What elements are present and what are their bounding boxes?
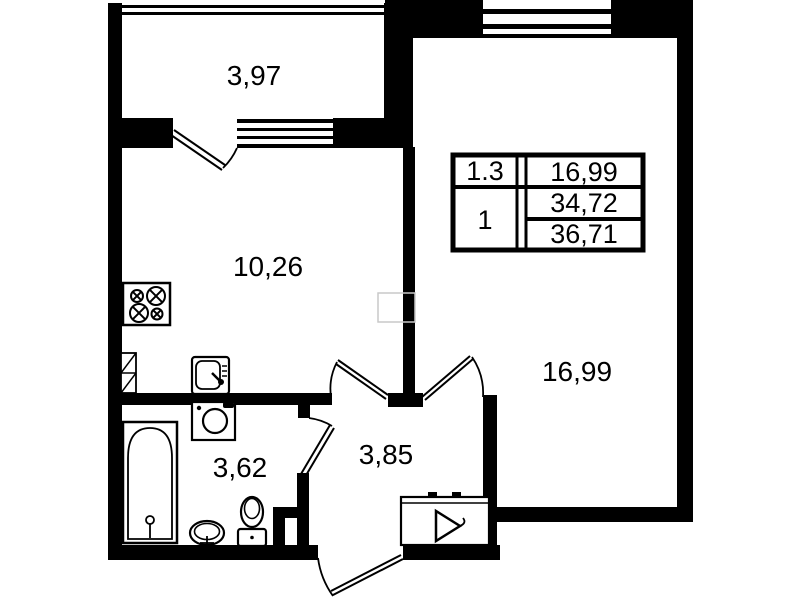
kitchen-room-wall — [403, 147, 415, 397]
washing-machine-icon — [192, 402, 235, 440]
panel-tick — [428, 492, 437, 497]
toilet-button — [250, 536, 254, 540]
bathroom-bottom-wall — [108, 545, 318, 560]
washer-drum — [203, 409, 227, 433]
door-leaf — [305, 428, 334, 477]
bathroom-door-icon — [301, 418, 334, 477]
left-outer-wall — [108, 3, 122, 560]
door-leaf — [336, 364, 386, 399]
door-leaf — [422, 356, 470, 397]
entrance-door-icon — [318, 555, 403, 596]
balcony-area-label: 3,97 — [227, 60, 282, 91]
tub-drain — [146, 516, 154, 524]
entrance-panel-icon — [401, 492, 489, 545]
room-door-icon — [422, 356, 483, 400]
railing-line — [110, 12, 398, 15]
walls — [108, 0, 693, 560]
balcony-door-icon — [171, 130, 237, 170]
floor-plan-drawing: 1.3 16,99 1 34,72 36,71 3,97 10,26 16,99… — [0, 0, 799, 600]
table-cell-total-area: 36,71 — [550, 219, 618, 249]
floor-plan-page: 1.3 16,99 1 34,72 36,71 3,97 10,26 16,99… — [0, 0, 799, 600]
door-leaf — [171, 135, 222, 170]
window-line — [237, 119, 333, 123]
duct-wall-left — [273, 518, 285, 547]
table-cell-section: 1.3 — [466, 156, 504, 186]
door-leaf — [301, 425, 330, 474]
washer-knob — [197, 406, 201, 410]
window-line — [237, 136, 333, 139]
stove-icon — [123, 283, 170, 325]
balcony-railing — [110, 5, 398, 15]
washbasin-icon — [190, 521, 224, 548]
door-leaf — [333, 559, 403, 595]
door-leaf — [174, 130, 225, 165]
bathroom-area-label: 3,62 — [213, 452, 268, 483]
room-window-icon — [483, 9, 611, 38]
window-line — [483, 24, 611, 29]
hall-door-jamb-wall — [388, 393, 423, 407]
window-line — [237, 144, 333, 148]
info-table-column-divider — [517, 156, 526, 249]
door-swing-arc — [472, 357, 483, 397]
kitchen-door-icon — [330, 360, 388, 399]
window-line — [483, 34, 611, 38]
table-cell-area: 34,72 — [550, 188, 618, 218]
balcony-bottom-wall-left — [108, 118, 173, 148]
kitchen-sink-icon — [192, 357, 229, 394]
railing-line — [110, 5, 398, 8]
door-swing-arc — [330, 362, 337, 397]
door-leaf — [331, 555, 401, 591]
kitchen-area-label: 10,26 — [233, 251, 303, 282]
table-cell-rooms: 1 — [477, 205, 492, 235]
door-leaf — [338, 360, 388, 395]
window-line — [483, 9, 611, 14]
hall-area-label: 3,85 — [359, 439, 414, 470]
table-cell-living-area: 16,99 — [550, 157, 618, 187]
door-swing-arc — [223, 148, 237, 168]
panel-tick — [452, 492, 461, 497]
info-table: 1.3 16,99 1 34,72 36,71 — [453, 155, 643, 250]
balcony-window-icon — [237, 119, 333, 148]
door-swing-arc — [309, 418, 332, 426]
toilet-icon — [238, 497, 266, 546]
washer-tray — [223, 402, 234, 408]
door-leaf — [425, 359, 473, 400]
top-wall-left — [398, 0, 483, 38]
right-outer-wall — [677, 0, 693, 522]
bathtub-icon — [123, 422, 177, 543]
living-room-area-label: 16,99 — [542, 356, 612, 387]
entrance-bottom-wall — [403, 545, 500, 560]
duct-wall-top — [273, 507, 297, 518]
ventilation-shaft-icon — [121, 353, 136, 393]
window-line — [237, 128, 333, 131]
bathroom-door-jamb — [298, 393, 310, 418]
room-bottom-wall — [497, 507, 693, 522]
sink-bowl — [196, 361, 220, 389]
